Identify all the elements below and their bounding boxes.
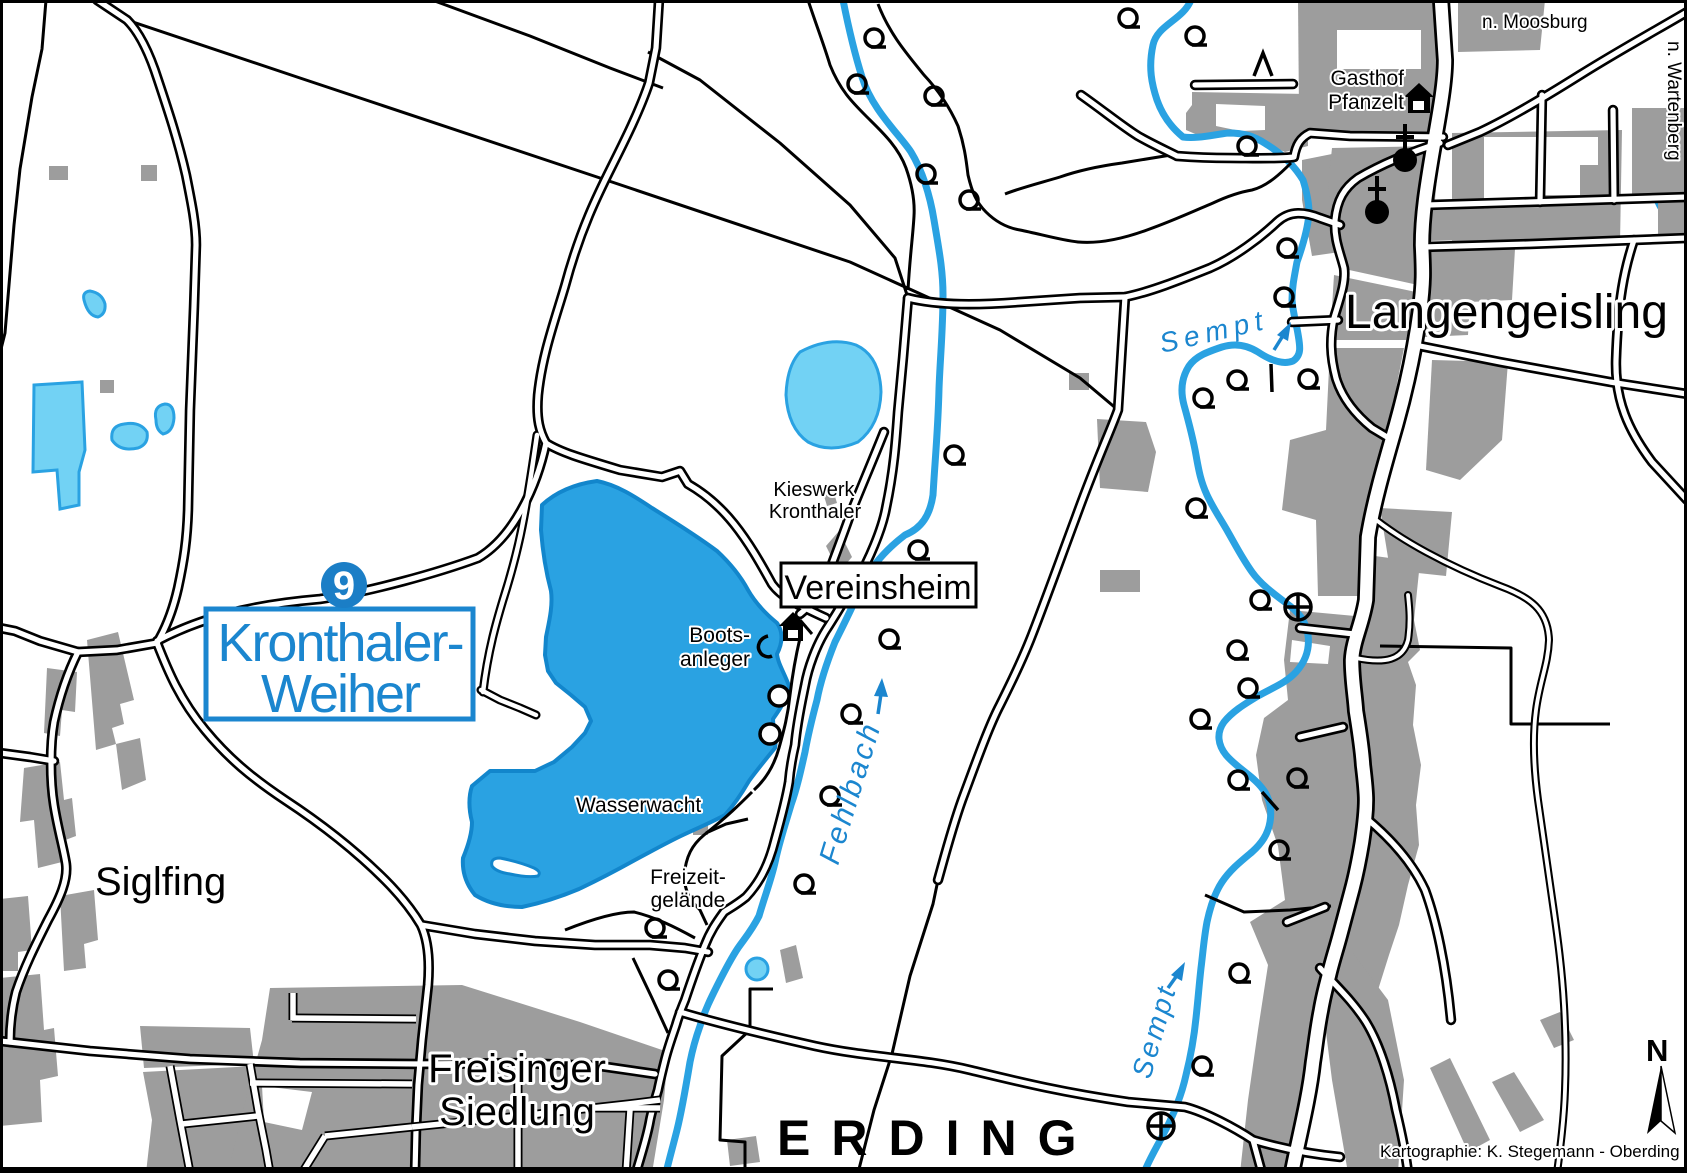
svg-text:n. Moosburg: n. Moosburg	[1482, 12, 1588, 33]
svg-text:ERDING: ERDING	[777, 1110, 1097, 1166]
svg-text:gelände: gelände	[651, 889, 726, 912]
svg-text:Vereinsheim: Vereinsheim	[784, 569, 971, 607]
svg-text:Kronthaler: Kronthaler	[769, 501, 862, 523]
svg-text:Wasserwacht: Wasserwacht	[576, 794, 701, 817]
svg-text:n. Wartenberg: n. Wartenberg	[1663, 41, 1684, 161]
svg-text:Gasthof: Gasthof	[1330, 67, 1404, 90]
svg-text:Siglfing: Siglfing	[95, 860, 226, 904]
svg-text:Freizeit-: Freizeit-	[650, 866, 726, 889]
svg-text:anleger: anleger	[680, 648, 750, 671]
svg-text:Boots-: Boots-	[689, 624, 750, 647]
svg-text:Kieswerk: Kieswerk	[773, 479, 855, 501]
svg-text:Langengeisling: Langengeisling	[1345, 286, 1668, 339]
svg-text:N: N	[1646, 1033, 1668, 1068]
svg-text:Weiher: Weiher	[261, 664, 421, 724]
svg-text:Pfanzelt: Pfanzelt	[1328, 91, 1404, 114]
svg-text:Siedlung: Siedlung	[439, 1090, 595, 1134]
svg-text:Kartographie: K. Stegemann - O: Kartographie: K. Stegemann - Oberding	[1380, 1142, 1680, 1161]
svg-text:9: 9	[333, 564, 355, 608]
svg-text:Freisinger: Freisinger	[428, 1047, 606, 1091]
